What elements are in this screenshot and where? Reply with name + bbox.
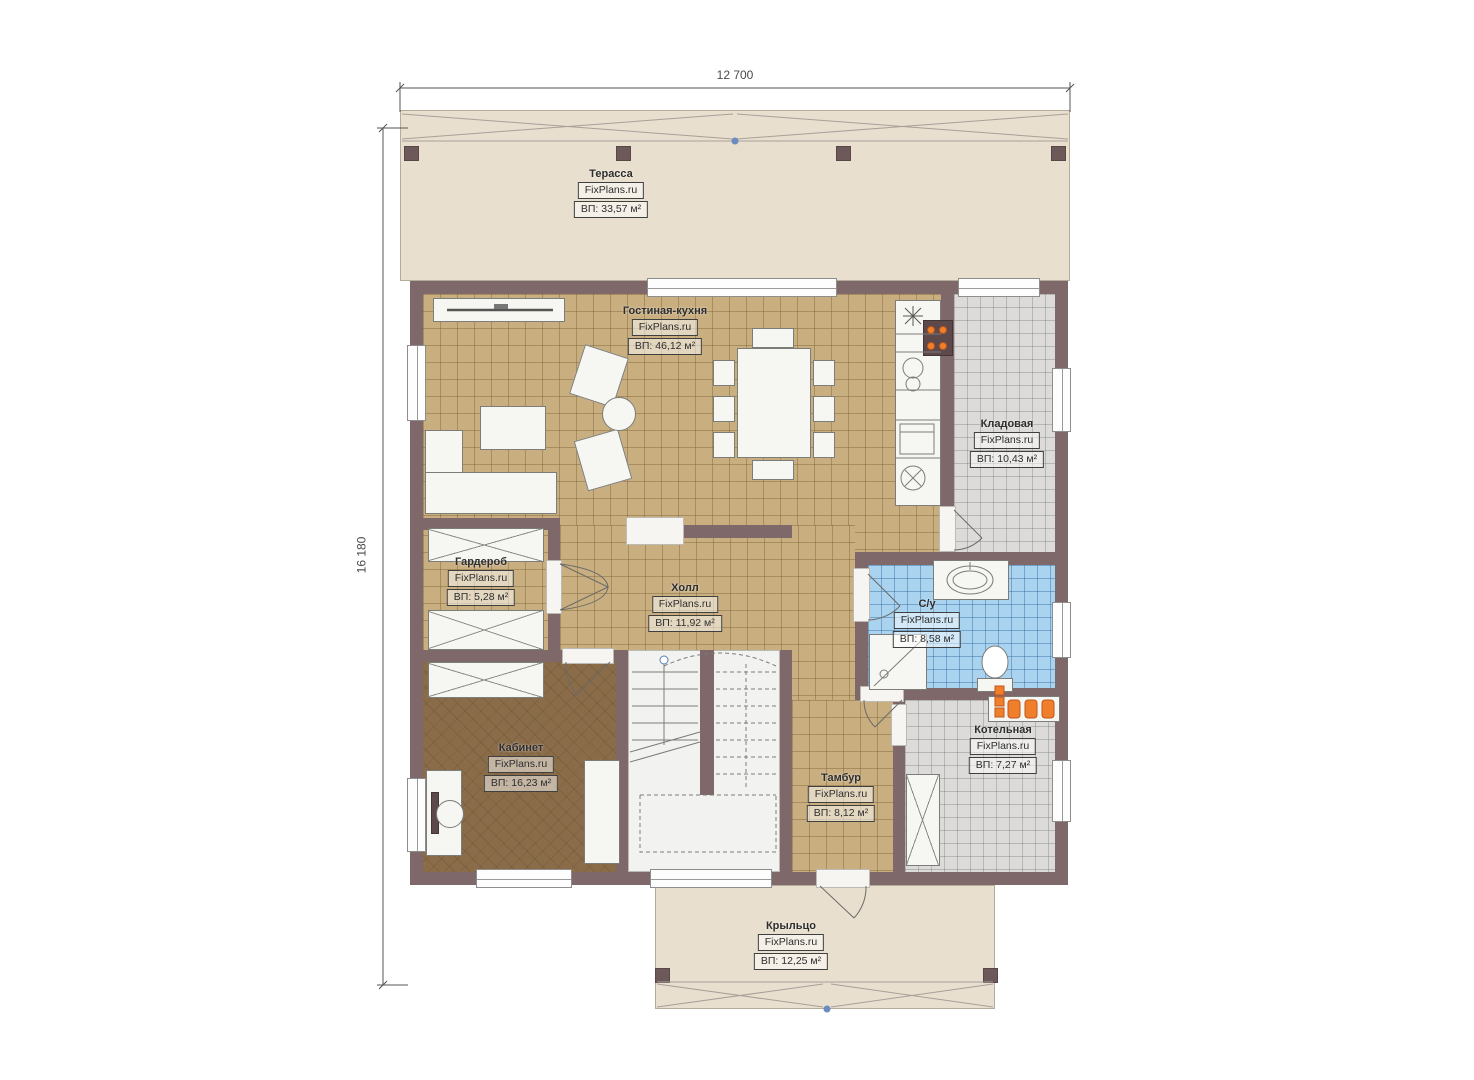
dining-chair <box>752 460 794 480</box>
brand-watermark: FixPlans.ru <box>652 596 719 613</box>
label-porch: Крыльцо FixPlans.ru ВП: 12,25 м² <box>754 920 828 970</box>
dining-chair <box>713 360 735 386</box>
toilet-tank <box>977 678 1013 692</box>
dining-chair <box>813 432 835 458</box>
vestibule-cabinet <box>906 774 940 866</box>
doorway-boiler <box>891 704 907 746</box>
brand-watermark: FixPlans.ru <box>894 612 961 629</box>
window-terrace-glazing <box>647 278 837 297</box>
terrace-floor <box>400 110 1070 281</box>
room-area: ВП: 46,12 м² <box>628 338 702 355</box>
window-storage-right <box>1052 368 1071 432</box>
doorway-front <box>816 869 870 888</box>
sofa-seat <box>425 472 557 514</box>
window-storage-top <box>958 278 1040 297</box>
terrace-post <box>836 146 851 161</box>
tv-stand <box>433 298 565 322</box>
office-cabinet <box>428 662 544 698</box>
room-name: Кладовая <box>981 418 1034 430</box>
doorway-storage <box>939 506 956 552</box>
bathroom-counter <box>933 560 1009 600</box>
brand-watermark: FixPlans.ru <box>808 786 875 803</box>
dimension-width-label: 12 700 <box>717 68 754 82</box>
room-area: ВП: 12,25 м² <box>754 953 828 970</box>
window-bathroom-right <box>1052 602 1071 658</box>
room-name: Тамбур <box>821 772 861 784</box>
brand-watermark: FixPlans.ru <box>758 934 825 951</box>
label-living-kitchen: Гостиная-кухня FixPlans.ru ВП: 46,12 м² <box>623 305 707 355</box>
label-hall: Холл FixPlans.ru ВП: 11,92 м² <box>648 582 722 632</box>
window-office-bottom <box>476 869 572 888</box>
brand-watermark: FixPlans.ru <box>578 182 645 199</box>
dining-chair <box>752 328 794 348</box>
opening-living-hall <box>626 517 684 545</box>
dining-chair <box>813 396 835 422</box>
room-area: ВП: 5,28 м² <box>447 589 515 606</box>
room-area: ВП: 8,12 м² <box>807 805 875 822</box>
dining-chair <box>813 360 835 386</box>
doorway-bathroom <box>853 568 870 622</box>
terrace-post <box>1051 146 1066 161</box>
boiler-shelf <box>988 696 1060 722</box>
room-area: ВП: 33,57 м² <box>574 201 648 218</box>
cooktop <box>923 320 953 356</box>
label-boiler: Котельная FixPlans.ru ВП: 7,27 м² <box>969 724 1037 774</box>
dining-chair <box>713 396 735 422</box>
window-office-left <box>407 778 426 852</box>
label-vestibule: Тамбур FixPlans.ru ВП: 8,12 м² <box>807 772 875 822</box>
room-name: Крыльцо <box>766 920 816 932</box>
floor-plan: 12 700 16 180 Терасса FixPlans.ru ВП: 33… <box>0 0 1474 1080</box>
brand-watermark: FixPlans.ru <box>488 756 555 773</box>
label-terrace: Терасса FixPlans.ru ВП: 33,57 м² <box>574 168 648 218</box>
porch-post <box>655 968 670 983</box>
room-name: Котельная <box>974 724 1032 736</box>
label-office: Кабинет FixPlans.ru ВП: 16,23 м² <box>484 742 558 792</box>
brand-watermark: FixPlans.ru <box>632 319 699 336</box>
room-name: Холл <box>671 582 699 594</box>
dining-table <box>737 348 811 458</box>
desk-chair <box>436 800 464 828</box>
label-wardrobe: Гардероб FixPlans.ru ВП: 5,28 м² <box>447 556 515 606</box>
dining-chair <box>713 432 735 458</box>
room-area: ВП: 7,27 м² <box>969 757 1037 774</box>
porch-post <box>983 968 998 983</box>
room-area: ВП: 11,92 м² <box>648 615 722 632</box>
doorway-wardrobe <box>546 560 562 614</box>
wardrobe-cabinet <box>428 610 544 650</box>
wall-stairs-right <box>780 650 792 872</box>
terrace-post <box>404 146 419 161</box>
room-name: Кабинет <box>499 742 544 754</box>
room-name: Гардероб <box>455 556 507 568</box>
coffee-table <box>480 406 546 450</box>
doorway-office <box>562 648 614 664</box>
wall-living-hall-stub <box>682 525 792 538</box>
label-storage: Кладовая FixPlans.ru ВП: 10,43 м² <box>970 418 1044 468</box>
label-bathroom: С/у FixPlans.ru ВП: 8,58 м² <box>893 598 961 648</box>
room-name: Терасса <box>589 168 633 180</box>
terrace-post <box>616 146 631 161</box>
room-area: ВП: 16,23 м² <box>484 775 558 792</box>
window-living-left <box>407 345 426 421</box>
room-area: ВП: 10,43 м² <box>970 451 1044 468</box>
room-name: Гостиная-кухня <box>623 305 707 317</box>
brand-watermark: FixPlans.ru <box>448 570 515 587</box>
dimension-height-label: 16 180 <box>354 537 368 574</box>
brand-watermark: FixPlans.ru <box>970 738 1037 755</box>
office-couch <box>584 760 620 864</box>
room-area: ВП: 8,58 м² <box>893 631 961 648</box>
room-name: С/у <box>918 598 935 610</box>
wall-stairs-divider <box>700 650 714 795</box>
side-table <box>602 397 636 431</box>
brand-watermark: FixPlans.ru <box>974 432 1041 449</box>
window-boiler-right <box>1052 760 1071 822</box>
window-stairs-bottom <box>650 869 772 888</box>
